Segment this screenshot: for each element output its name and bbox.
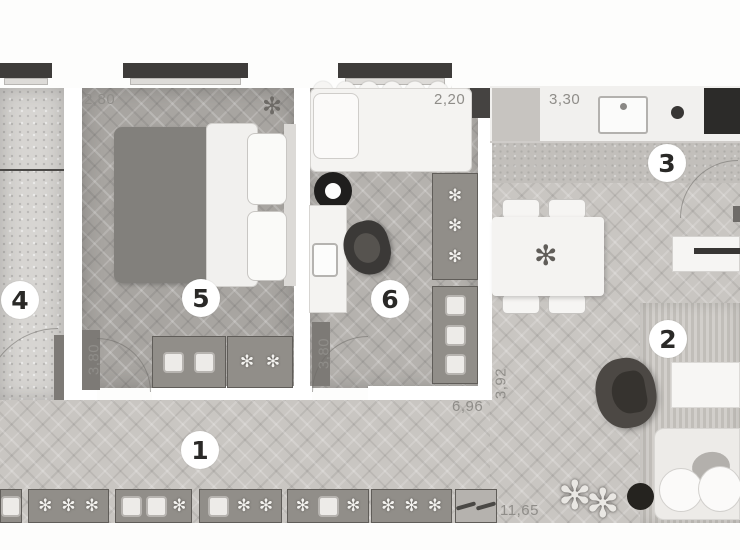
- plant-icon: ✻: [85, 498, 99, 515]
- floor-plan: ✻ ✻ ✻ ✻ ✻ ✻ ✻: [0, 0, 740, 550]
- room-circle-3: 3: [648, 144, 686, 182]
- door-arc-balcony: [0, 328, 58, 402]
- balcony-planter: ✻ ✻: [199, 489, 282, 523]
- dim-kitchen-width: 3,30: [549, 91, 580, 108]
- door-arc-bedroom: [97, 338, 151, 392]
- plant-icon: ✻: [428, 498, 442, 515]
- room-circle-1: 1: [181, 431, 219, 469]
- plant-pot-dark: [627, 483, 654, 510]
- sink: [598, 96, 648, 134]
- armchair-seat: [609, 369, 650, 416]
- dining-chair: [548, 199, 586, 219]
- dim-kidsroom-width: 2,20: [434, 91, 465, 108]
- tv: [694, 248, 740, 254]
- shelf-plants: ✻ ✻ ✻: [432, 173, 478, 280]
- plant-icon: ✻: [448, 249, 462, 266]
- outdoor-plant-icon: ✻: [586, 484, 620, 524]
- single-bed-pillow: [313, 93, 359, 159]
- balcony-planter: [0, 489, 22, 523]
- dining-chair: [502, 199, 540, 219]
- wall-balcony-bedroom: [64, 88, 82, 400]
- room-number: 6: [381, 285, 398, 314]
- balcony-planter: ✻ ✻ ✻: [28, 489, 109, 523]
- plant-icon: ✻: [404, 498, 418, 515]
- sofa-pillow: [659, 468, 703, 512]
- pot: [1, 496, 21, 517]
- laptop: [312, 243, 338, 277]
- pot: [318, 496, 339, 517]
- cooktop: [704, 88, 740, 134]
- room-circle-4: 4: [1, 281, 39, 319]
- bench-slat: [456, 501, 476, 510]
- balcony-planter: ✻ ✻ ✻: [371, 489, 452, 523]
- dim-living-depth: 3,92: [493, 362, 510, 406]
- room-circle-2: 2: [649, 320, 687, 358]
- fridge: [492, 88, 540, 141]
- balcony-planter: ✻ ✻: [287, 489, 369, 523]
- room-number: 5: [192, 284, 209, 313]
- bedroom-plant-icon: ✻: [262, 94, 282, 118]
- centerpiece-plant-icon: ✻: [534, 242, 557, 270]
- sink-drain: [620, 103, 627, 110]
- bedroom-storage-pots: [152, 336, 226, 388]
- bed-pillow-1: [247, 133, 287, 205]
- window-frame-2: [123, 63, 248, 78]
- sofa-pillow: [698, 466, 740, 512]
- office-chair-seat: [351, 230, 384, 266]
- balcony-planter: ✻: [115, 489, 192, 523]
- room-number: 3: [658, 149, 675, 178]
- shelf-pots: [432, 286, 478, 384]
- room-number: 4: [11, 286, 28, 315]
- room-number: 1: [191, 436, 208, 465]
- dining-chair: [548, 294, 586, 314]
- side-table-top: [325, 183, 341, 199]
- plant-icon: ✻: [448, 218, 462, 235]
- dim-bedroom-width: 2,80: [84, 91, 115, 108]
- plant-icon: ✻: [381, 498, 395, 515]
- plant-icon: ✻: [237, 498, 251, 515]
- planter-bench: [455, 489, 497, 523]
- plant-icon: ✻: [61, 498, 75, 515]
- plant-icon: ✻: [346, 498, 360, 515]
- plant-icon: ✻: [38, 498, 52, 515]
- room-circle-6: 6: [371, 280, 409, 318]
- pot: [445, 295, 466, 316]
- window-sill-1: [4, 78, 48, 85]
- bed-duvet: [114, 127, 214, 283]
- bed-pillow-2: [247, 211, 287, 281]
- dim-bedroom-depth: 3,80: [86, 338, 103, 382]
- plant-icon: ✻: [172, 498, 186, 515]
- pot: [146, 496, 167, 517]
- pot: [194, 352, 215, 373]
- pot: [445, 354, 466, 375]
- dim-kidsroom-depth: 3,80: [316, 332, 333, 376]
- dim-corridor-length: 6,96: [452, 398, 483, 415]
- window-sill-2: [130, 78, 241, 85]
- plant-icon: ✻: [240, 354, 254, 371]
- tv-console: [672, 236, 740, 272]
- plant-icon: ✻: [259, 498, 273, 515]
- balcony-divider-line: [0, 169, 64, 171]
- room-circle-5: 5: [182, 279, 220, 317]
- pot: [445, 325, 466, 346]
- room-number: 2: [659, 325, 676, 354]
- wall-kidsroom-bottom-left: [294, 386, 312, 400]
- door-arc-kitchen: [680, 160, 738, 218]
- bench-slat: [476, 501, 496, 510]
- faucet: [671, 106, 684, 119]
- pot: [163, 352, 184, 373]
- wall-bedroom-kidsroom: [294, 88, 310, 400]
- wall-cap-kitchen: [470, 88, 490, 118]
- window-frame-1: [0, 63, 52, 78]
- bedroom-storage-plants: ✻ ✻: [227, 336, 293, 388]
- pot: [208, 496, 229, 517]
- coffee-table: [671, 362, 740, 408]
- plant-icon: ✻: [296, 498, 310, 515]
- pot: [121, 496, 142, 517]
- dining-chair: [502, 294, 540, 314]
- dim-total-length: 11,65: [500, 502, 539, 519]
- plant-icon: ✻: [266, 354, 280, 371]
- window-frame-3: [338, 63, 452, 78]
- plant-icon: ✻: [448, 188, 462, 205]
- wall-bedroom-bottom-right: [152, 386, 294, 400]
